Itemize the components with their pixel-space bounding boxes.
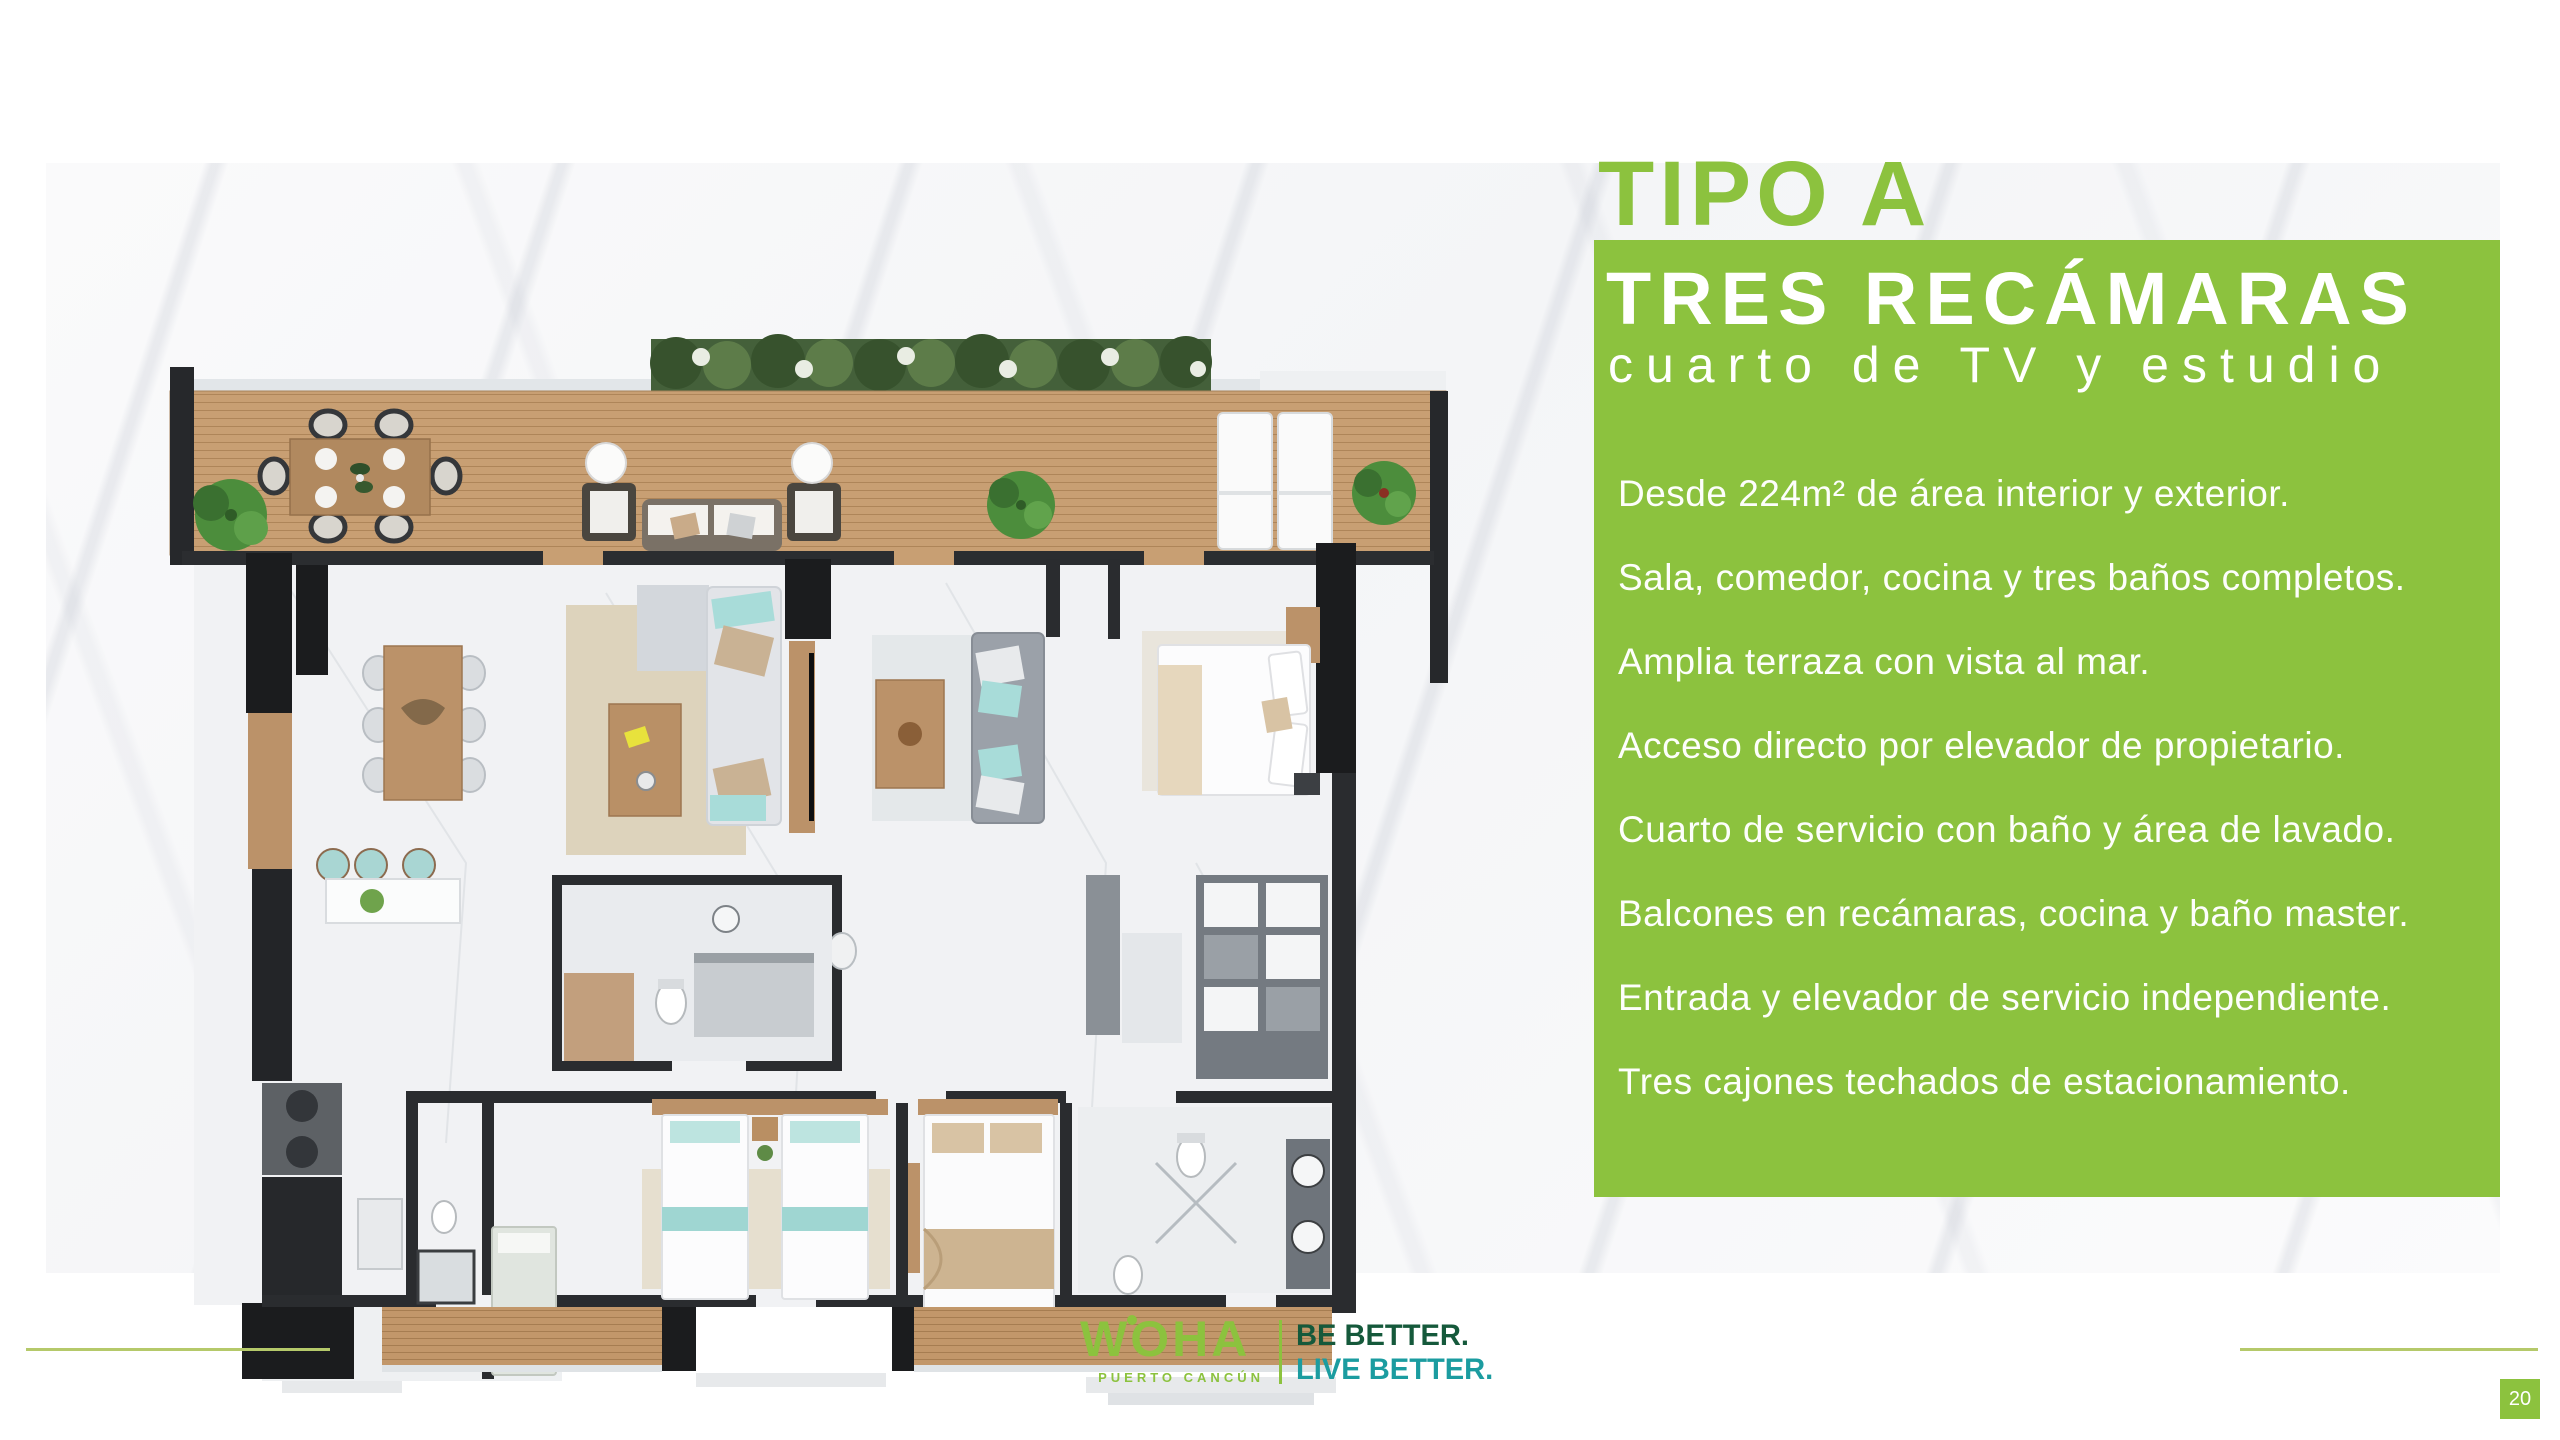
twin-bedroom [642, 1099, 890, 1299]
page-number-badge: 20 [2500, 1379, 2540, 1419]
feature-item: Desde 224m² de área interior y exterior. [1618, 452, 2484, 536]
brand-tagline: BE BETTER. LIVE BETTER. [1296, 1319, 1493, 1387]
brand-wordmark: WOHA [1080, 1314, 1264, 1364]
feature-item: Entrada y elevador de servicio independi… [1618, 956, 2484, 1040]
page-number: 20 [2509, 1388, 2531, 1411]
tagline-line1: BE BETTER. [1296, 1319, 1493, 1353]
terrace-palm-mid [987, 471, 1055, 539]
master-bathroom [1078, 1107, 1330, 1294]
slide: { "panel": { "eyebrow": "TIPO A", "title… [0, 0, 2560, 1440]
feature-item: Balcones en recámaras, cocina y baño mas… [1618, 872, 2484, 956]
third-bedroom [908, 1099, 1058, 1325]
brand-dot-icon [1127, 1315, 1137, 1325]
feature-item: Acceso directo por elevador de propietar… [1618, 704, 2484, 788]
footer-rule-left [26, 1348, 330, 1351]
unit-type-label: TIPO A [1598, 148, 1931, 240]
master-bedroom [1142, 607, 1320, 795]
brand-divider [1279, 1320, 1282, 1384]
brand-logo: WOHA PUERTO CANCÚN [1080, 1314, 1264, 1385]
feature-list: Desde 224m² de área interior y exterior.… [1618, 452, 2484, 1124]
living-room [566, 585, 781, 855]
feature-item: Cuarto de servicio con baño y área de la… [1618, 788, 2484, 872]
feature-item: Tres cajones techados de estacionamiento… [1618, 1040, 2484, 1124]
brand-location: PUERTO CANCÚN [1080, 1370, 1264, 1385]
floor-plan-image [156, 333, 1456, 1438]
feature-item: Sala, comedor, cocina y tres baños compl… [1618, 536, 2484, 620]
panel-subtitle: cuarto de TV y estudio [1608, 340, 2393, 390]
guest-bathroom [562, 885, 832, 1061]
tv-room [872, 633, 1044, 823]
panel-title: TRES RECÁMARAS [1606, 262, 2417, 336]
footer-rule-right [2240, 1348, 2538, 1351]
feature-item: Amplia terraza con vista al mar. [1618, 620, 2484, 704]
tagline-line2: LIVE BETTER. [1296, 1353, 1493, 1387]
terrace-palm-right [1352, 461, 1416, 525]
